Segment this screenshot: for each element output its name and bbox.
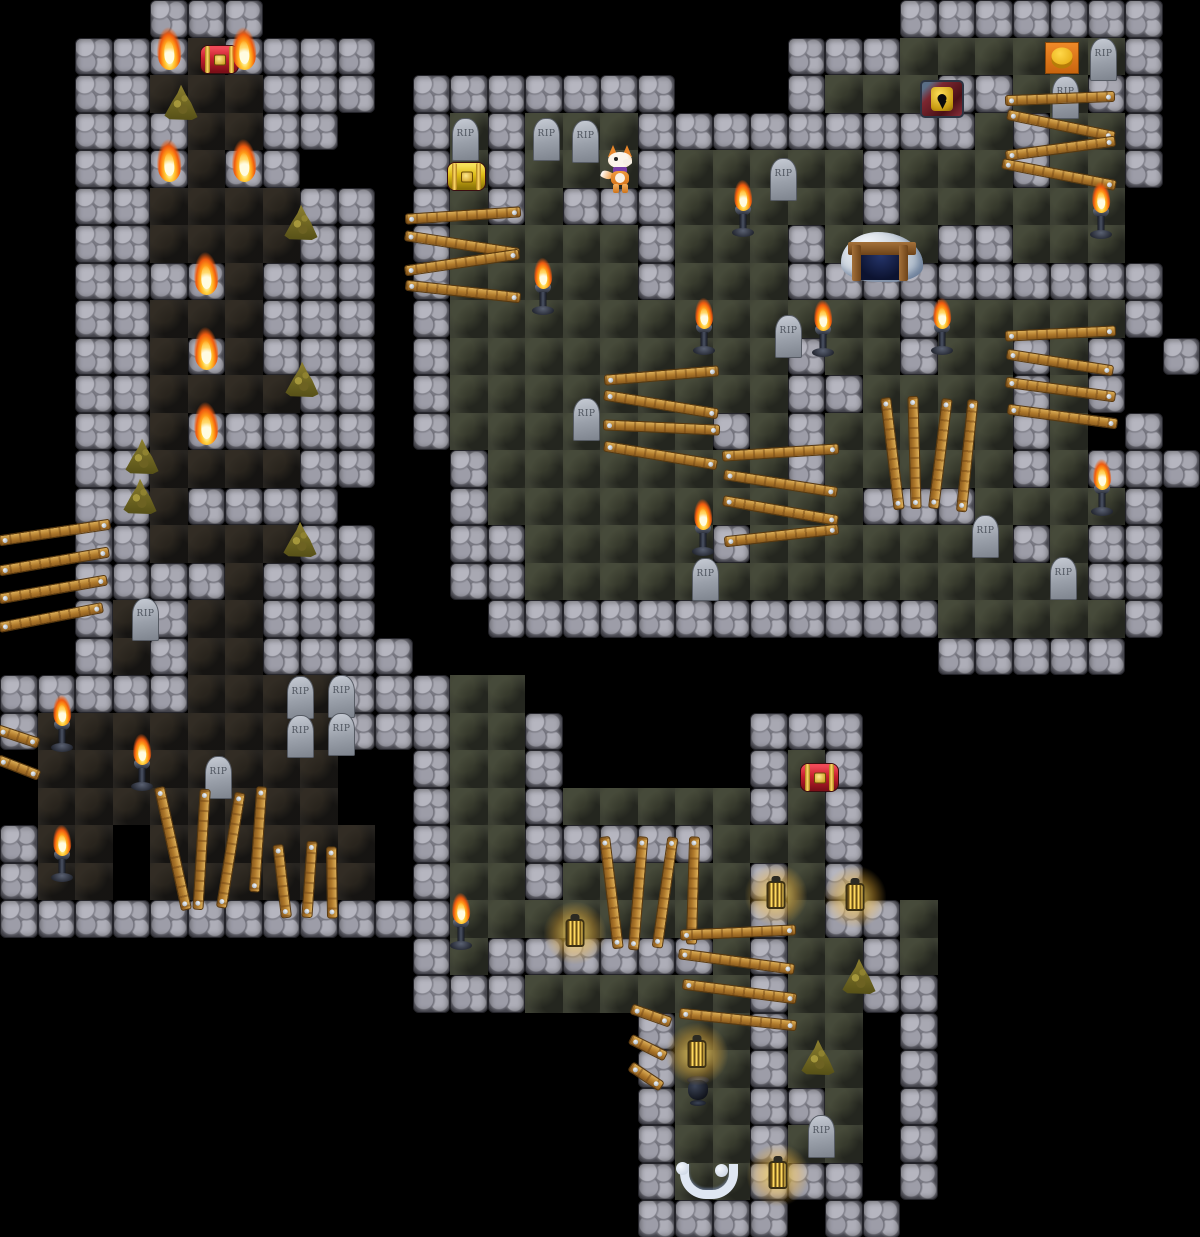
lantern-icon [845,882,865,912]
stone-wall-tile [1125,413,1163,450]
stone-wall-tile [413,113,450,150]
stone-wall-tile [263,263,300,300]
stone-wall-tile [525,75,563,113]
gravestone: RIP [132,598,159,641]
gravestone-label: RIP [133,609,158,619]
floor-tile [300,788,338,825]
gravestone: RIP [287,676,314,719]
stone-wall-tile [863,150,900,188]
stone-wall-tile [488,75,525,113]
stone-wall-tile [900,113,938,150]
floor-tile [713,1125,750,1163]
floor-tile [150,713,188,750]
floor-tile [1013,188,1050,225]
stone-wall-tile [713,113,750,150]
stone-wall-tile [0,675,38,713]
floor-tile [713,825,750,863]
gravestone-label: RIP [288,726,313,736]
floor-tile [113,788,150,825]
stone-wall-tile [675,1200,713,1237]
floor-tile [900,938,938,975]
stone-wall-tile [75,150,113,188]
stone-wall-tile [1125,300,1163,338]
stone-wall-tile [1088,525,1125,563]
stone-wall-tile [1013,638,1050,675]
floor-tile [900,188,938,225]
floor-tile [563,863,600,900]
floor-tile [525,450,563,488]
floor-tile [225,263,263,300]
floor-tile [75,713,113,750]
floor-tile [225,600,263,638]
stone-wall-tile [713,600,750,638]
floor-tile [1013,225,1050,263]
floor-tile [563,563,600,600]
floor-tile [563,225,600,263]
floor-tile [75,825,113,863]
stone-wall-tile [338,900,375,938]
floor-tile [713,1088,750,1125]
stone-wall-tile [975,225,1013,263]
stone-wall-tile [75,75,113,113]
stone-wall-tile [413,75,450,113]
floor-tile [975,38,1013,75]
floor-tile [488,488,525,525]
floor-tile [488,713,525,750]
stone-wall-tile [75,225,113,263]
stone-wall-tile [788,713,825,750]
stone-wall-tile [1088,563,1125,600]
stone-wall-tile [788,113,825,150]
floor-tile [600,488,638,525]
floor-tile [675,788,713,825]
floor-tile [188,713,225,750]
floor-tile [1050,188,1088,225]
floor-tile [525,488,563,525]
floor-tile [563,300,600,338]
floor-tile [863,563,900,600]
stone-wall-tile [600,188,638,225]
stone-wall-tile [113,263,150,300]
stone-wall-tile [488,975,525,1013]
gravestone: RIP [808,1115,835,1158]
lantern-icon [768,1160,788,1190]
floor-tile [563,525,600,563]
stone-wall-tile [638,188,675,225]
floor-tile [938,38,975,75]
stone-wall-tile [1013,0,1050,38]
floor-tile [188,150,225,188]
floor-tile [188,600,225,638]
floor-tile [488,863,525,900]
gravestone: RIP [692,558,719,601]
floor-tile [825,75,863,113]
stone-wall-tile [975,0,1013,38]
stone-wall-tile [113,375,150,413]
floor-tile [263,450,300,488]
floor-tile [150,300,188,338]
stone-wall-tile [0,863,38,900]
stone-wall-tile [788,600,825,638]
stone-wall-tile [525,825,563,863]
gravestone-label: RIP [693,569,718,579]
gravestone: RIP [572,120,599,163]
gravestone: RIP [287,715,314,758]
floor-tile [525,338,563,375]
bone-pile [676,1164,730,1200]
stone-wall-tile [113,338,150,375]
cave-entrance[interactable] [841,232,923,282]
gravestone: RIP [452,118,479,161]
floor-tile [113,638,150,675]
floor-tile [488,788,525,825]
floor-tile [600,563,638,600]
stone-wall-tile [450,975,488,1013]
floor-tile [975,413,1013,450]
wooden-plank [0,754,41,780]
floor-tile [975,563,1013,600]
floor-tile [225,638,263,675]
stone-wall-tile [375,713,413,750]
floor-tile [1013,563,1050,600]
stone-wall-tile [263,300,300,338]
gravestone: RIP [328,675,355,718]
stone-wall-tile [75,300,113,338]
stone-wall-tile [638,1163,675,1200]
stone-wall-tile [788,75,825,113]
stone-wall-tile [1125,150,1163,188]
stone-wall-tile [413,713,450,750]
floor-tile [1013,600,1050,638]
stone-wall-tile [638,263,675,300]
stone-wall-tile [825,375,863,413]
floor-tile [975,450,1013,488]
stone-wall-tile [0,825,38,863]
floor-tile [38,788,75,825]
stone-wall-tile [1088,0,1125,38]
stone-wall-tile [863,600,900,638]
stone-wall-tile [113,525,150,563]
player-character-fox[interactable] [605,145,635,193]
stone-wall-tile [675,600,713,638]
stone-wall-tile [863,38,900,75]
floor-tile [38,750,75,788]
stone-wall-tile [563,600,600,638]
stone-wall-tile [75,675,113,713]
stone-wall-tile [525,600,563,638]
yellow-chest[interactable] [447,162,486,191]
stone-wall-tile [75,638,113,675]
floor-tile [150,488,188,525]
floor-tile [525,563,563,600]
stone-wall-tile [300,113,338,150]
stone-wall-tile [750,113,788,150]
floor-tile [188,525,225,563]
floor-tile [150,525,188,563]
stone-wall-tile [638,1200,675,1237]
stone-wall-tile [338,338,375,375]
floor-tile [150,750,188,788]
stone-wall-tile [488,525,525,563]
stone-wall-tile [338,188,375,225]
floor-tile [750,263,788,300]
stone-wall-tile [825,1163,863,1200]
stone-wall-tile [0,900,38,938]
stone-wall-tile [338,638,375,675]
floor-tile [975,188,1013,225]
stone-wall-tile [863,938,900,975]
dungeon-game-canvas: RIPRIPRIPRIPRIPRIPRIPRIPRIPRIPRIPRIPRIPR… [0,0,1200,1237]
stone-wall-tile [450,75,488,113]
floor-tile [338,825,375,863]
floor-tile [938,188,975,225]
stone-wall-tile [1050,0,1088,38]
gravestone: RIP [328,713,355,756]
stone-wall-tile [188,488,225,525]
gravestone: RIP [1090,38,1117,81]
stone-wall-tile [1125,75,1163,113]
floor-tile [825,450,863,488]
stone-wall-tile [113,188,150,225]
floor-tile [263,788,300,825]
stone-wall-tile [900,975,938,1013]
stone-wall-tile [338,263,375,300]
floor-tile [563,338,600,375]
stone-wall-tile [750,1088,788,1125]
floor-tile [563,488,600,525]
floor-tile [600,263,638,300]
stone-wall-tile [1013,450,1050,488]
gravestone: RIP [1050,557,1077,600]
floor-tile [225,675,263,713]
floor-tile [488,413,525,450]
floor-tile [675,1125,713,1163]
gravestone-label: RIP [574,409,599,419]
stone-wall-tile [1125,38,1163,75]
floor-tile [825,1013,863,1050]
stone-wall-tile [338,225,375,263]
stone-wall-tile [113,113,150,150]
stone-wall-tile [225,900,263,938]
stone-wall-tile [863,188,900,225]
stone-wall-tile [525,750,563,788]
stone-wall-tile [750,600,788,638]
stone-wall-tile [1163,338,1200,375]
floor-tile [563,263,600,300]
floor-tile [788,788,825,825]
stone-wall-tile [1088,638,1125,675]
floor-tile [563,788,600,825]
floor-tile [1050,488,1088,525]
stone-wall-tile [113,300,150,338]
stone-wall-tile [263,488,300,525]
stone-wall-tile [113,38,150,75]
stone-wall-tile [488,938,525,975]
stone-wall-tile [300,300,338,338]
stone-wall-tile [1125,263,1163,300]
floor-tile [750,825,788,863]
floor-tile [188,450,225,488]
floor-tile [600,300,638,338]
floor-tile [450,825,488,863]
stone-wall-tile [263,413,300,450]
floor-tile [938,600,975,638]
stone-wall-tile [413,938,450,975]
floor-tile [488,675,525,713]
stone-wall-tile [413,338,450,375]
floor-tile [713,263,750,300]
floor-tile [225,450,263,488]
floor-tile [938,150,975,188]
gravestone-label: RIP [453,129,478,139]
stone-wall-tile [863,1200,900,1237]
floor-tile [563,450,600,488]
floor-tile [713,300,750,338]
gravestone-label: RIP [534,129,559,139]
floor-tile [450,338,488,375]
stone-wall-tile [563,825,600,863]
stone-wall-tile [375,638,413,675]
floor-tile [150,413,188,450]
floor-tile [638,488,675,525]
stone-wall-tile [1163,450,1200,488]
floor-tile [225,713,263,750]
floor-tile [488,900,525,938]
stone-wall-tile [900,1050,938,1088]
floor-tile [900,375,938,413]
stone-wall-tile [1125,488,1163,525]
floor-tile [225,188,263,225]
floor-tile [863,338,900,375]
stone-wall-tile [450,525,488,563]
stone-wall-tile [525,788,563,825]
stone-wall-tile [263,338,300,375]
floor-tile [75,788,113,825]
stone-wall-tile [413,375,450,413]
stone-wall-tile [938,263,975,300]
lantern-icon [766,880,786,910]
stone-wall-tile [113,75,150,113]
stone-wall-tile [600,600,638,638]
stone-wall-tile [75,38,113,75]
wooden-plank [326,846,338,918]
floor-tile [900,150,938,188]
stone-wall-tile [1050,263,1088,300]
stone-wall-tile [188,563,225,600]
floor-tile [863,75,900,113]
coin-pressure-pad[interactable] [1045,42,1079,74]
stone-wall-tile [413,900,450,938]
stone-wall-tile [900,0,938,38]
floor-tile [450,750,488,788]
floor-tile [525,188,563,225]
stone-wall-tile [450,450,488,488]
stone-wall-tile [413,413,450,450]
stone-wall-tile [825,113,863,150]
stone-wall-tile [300,638,338,675]
floor-tile [1013,488,1050,525]
gravestone-label: RIP [973,526,998,536]
locked-door[interactable] [920,80,964,118]
floor-tile [525,375,563,413]
stone-wall-tile [750,788,788,825]
floor-tile [675,263,713,300]
stone-wall-tile [150,675,188,713]
floor-tile [900,900,938,938]
floor-tile [450,375,488,413]
stone-wall-tile [563,75,600,113]
stone-wall-tile [1125,113,1163,150]
stone-wall-tile [413,675,450,713]
floor-tile [225,75,263,113]
floor-tile [188,188,225,225]
floor-tile [225,300,263,338]
floor-tile [488,825,525,863]
stone-wall-tile [263,38,300,75]
stone-wall-tile [638,75,675,113]
stone-wall-tile [900,1088,938,1125]
floor-tile [900,38,938,75]
red-chest[interactable] [800,763,839,792]
floor-tile [1050,600,1088,638]
stone-wall-tile [300,450,338,488]
stone-wall-tile [638,1088,675,1125]
stone-wall-tile [525,713,563,750]
gravestone-label: RIP [1091,49,1116,59]
stone-wall-tile [188,0,225,38]
gravestone: RIP [533,118,560,161]
stone-wall-tile [413,788,450,825]
floor-tile [863,525,900,563]
floor-tile [788,563,825,600]
floor-tile [638,788,675,825]
stone-wall-tile [225,413,263,450]
floor-tile [938,525,975,563]
floor-tile [450,713,488,750]
stone-wall-tile [300,563,338,600]
gravestone-label: RIP [329,686,354,696]
stone-wall-tile [675,113,713,150]
floor-tile [1088,600,1125,638]
stone-wall-tile [75,188,113,225]
stone-wall-tile [75,900,113,938]
floor-tile [750,375,788,413]
stone-wall-tile [750,750,788,788]
stone-wall-tile [113,563,150,600]
stone-wall-tile [413,300,450,338]
floor-tile [225,563,263,600]
stone-wall-tile [38,900,75,938]
floor-tile [75,863,113,900]
stone-wall-tile [300,488,338,525]
stone-wall-tile [900,1125,938,1163]
floor-tile [600,788,638,825]
stone-wall-tile [638,1125,675,1163]
stone-wall-tile [638,600,675,638]
stone-wall-tile [975,263,1013,300]
stone-wall-tile [338,600,375,638]
floor-tile [750,225,788,263]
stone-wall-tile [75,450,113,488]
stone-wall-tile [375,900,413,938]
floor-tile [488,300,525,338]
stone-wall-tile [1088,263,1125,300]
gravestone-label: RIP [1051,568,1076,578]
stone-wall-tile [638,150,675,188]
stone-wall-tile [150,563,188,600]
stone-wall-tile [338,75,375,113]
floor-tile [225,225,263,263]
